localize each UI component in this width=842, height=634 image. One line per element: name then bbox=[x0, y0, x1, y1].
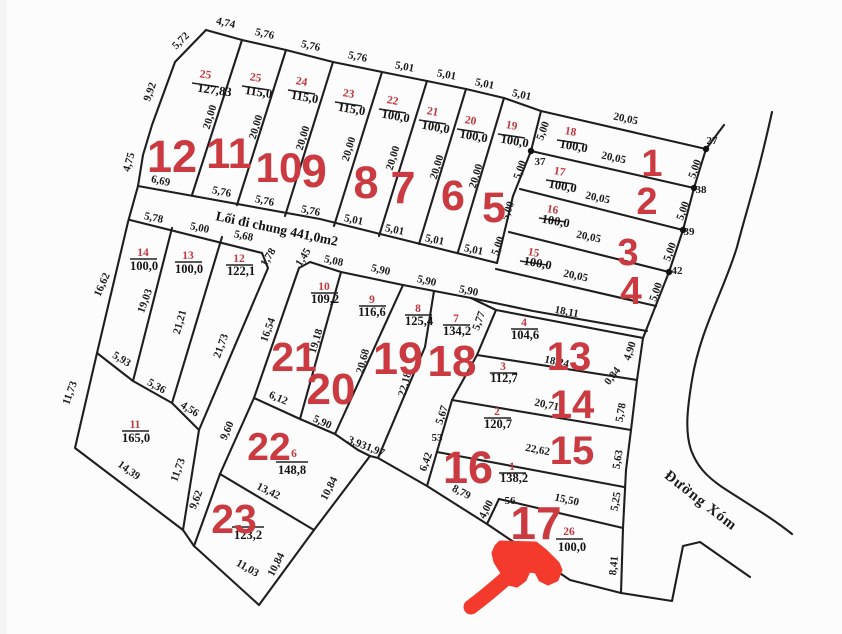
svg-text:165,0: 165,0 bbox=[122, 431, 150, 445]
svg-text:37: 37 bbox=[535, 156, 547, 168]
svg-text:125,4: 125,4 bbox=[405, 314, 434, 328]
svg-text:23: 23 bbox=[211, 496, 257, 542]
svg-text:16: 16 bbox=[443, 442, 493, 493]
svg-text:11: 11 bbox=[206, 130, 251, 178]
svg-text:138,2: 138,2 bbox=[500, 471, 528, 485]
svg-text:116,6: 116,6 bbox=[358, 305, 385, 319]
svg-text:13: 13 bbox=[182, 250, 194, 262]
svg-text:109,2: 109,2 bbox=[311, 292, 339, 306]
svg-text:9: 9 bbox=[301, 145, 327, 197]
svg-text:12: 12 bbox=[147, 131, 197, 182]
svg-text:100,0: 100,0 bbox=[558, 540, 586, 554]
svg-text:120,7: 120,7 bbox=[484, 417, 512, 431]
svg-text:38: 38 bbox=[696, 184, 708, 196]
svg-text:100,0: 100,0 bbox=[130, 259, 158, 273]
svg-text:18: 18 bbox=[428, 337, 477, 386]
svg-text:6: 6 bbox=[291, 448, 297, 460]
svg-text:21: 21 bbox=[426, 105, 440, 119]
svg-text:39: 39 bbox=[684, 226, 696, 238]
svg-text:7: 7 bbox=[390, 162, 415, 213]
svg-text:14: 14 bbox=[137, 247, 149, 259]
svg-text:25: 25 bbox=[199, 68, 212, 82]
svg-text:1: 1 bbox=[641, 143, 662, 185]
svg-text:27: 27 bbox=[707, 135, 719, 147]
svg-text:8,41: 8,41 bbox=[607, 555, 621, 575]
svg-text:5: 5 bbox=[482, 184, 506, 232]
svg-text:24: 24 bbox=[295, 75, 309, 89]
svg-text:100,0: 100,0 bbox=[175, 262, 203, 276]
svg-text:8: 8 bbox=[353, 157, 378, 208]
svg-text:22: 22 bbox=[386, 94, 400, 108]
svg-text:134,2: 134,2 bbox=[443, 324, 471, 338]
svg-text:42: 42 bbox=[672, 265, 684, 277]
svg-text:20: 20 bbox=[307, 365, 356, 414]
svg-text:15: 15 bbox=[550, 429, 595, 473]
svg-text:23: 23 bbox=[342, 87, 356, 101]
svg-text:4: 4 bbox=[620, 270, 642, 313]
svg-text:6: 6 bbox=[441, 172, 465, 220]
svg-text:122,1: 122,1 bbox=[227, 264, 255, 278]
svg-text:112,7: 112,7 bbox=[490, 371, 517, 385]
svg-text:22: 22 bbox=[247, 426, 290, 469]
svg-text:11: 11 bbox=[130, 419, 141, 431]
svg-text:26: 26 bbox=[563, 526, 575, 538]
svg-text:2: 2 bbox=[636, 181, 657, 223]
svg-text:3: 3 bbox=[617, 232, 638, 274]
svg-text:53: 53 bbox=[432, 432, 444, 444]
svg-text:20: 20 bbox=[464, 114, 478, 128]
svg-text:19: 19 bbox=[373, 333, 423, 384]
svg-text:10: 10 bbox=[256, 144, 303, 191]
svg-text:14: 14 bbox=[550, 383, 595, 427]
svg-text:19: 19 bbox=[505, 119, 519, 133]
svg-text:104,6: 104,6 bbox=[511, 328, 539, 342]
svg-text:13: 13 bbox=[547, 335, 592, 379]
